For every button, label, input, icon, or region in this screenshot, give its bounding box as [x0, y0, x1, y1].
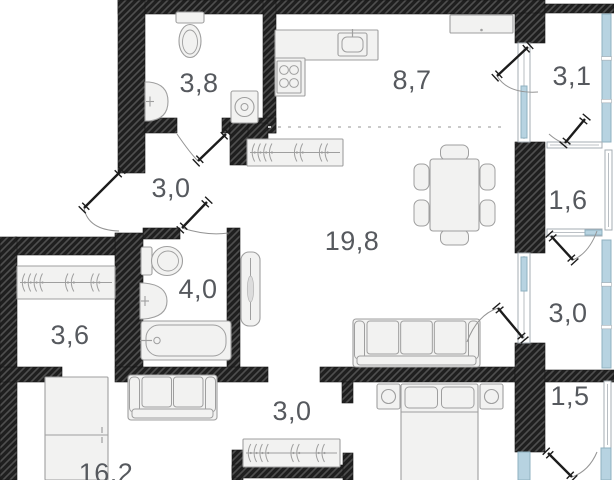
- room-label-loggia-mid: 1,6: [548, 185, 587, 215]
- door-loggia-15: [543, 448, 597, 480]
- wall-closet-top: [15, 237, 115, 255]
- wall-bath38-kitchen: [263, 0, 276, 133]
- furniture-toilet-side: [141, 247, 183, 276]
- wall-hall2-stub-a: [342, 382, 353, 403]
- furniture-sink-bath: [140, 283, 167, 319]
- wall-balc-col-a: [515, 13, 545, 43]
- furniture-loveseat: [128, 375, 217, 420]
- room-label-loggia-lower: 3,0: [548, 298, 587, 328]
- wall-balc-col-b: [515, 142, 545, 253]
- room-label-bathroom-small: 3,8: [179, 68, 218, 98]
- furniture-stove: [277, 61, 301, 93]
- room-label-closet: 3,6: [50, 320, 89, 350]
- door-bath-small: [177, 129, 231, 167]
- furniture-bed: [401, 384, 478, 480]
- furniture-cabinet-top: [450, 15, 513, 33]
- wall-balc-col-c: [515, 343, 545, 452]
- window-sill-31-16: [547, 142, 602, 148]
- wall-bath40-top: [143, 228, 180, 239]
- door-entrance: [79, 167, 126, 231]
- furniture-washing-machine: [231, 91, 258, 123]
- furniture-mirror: [241, 252, 260, 326]
- furniture-bathtub: [140, 321, 231, 360]
- window-frame-15-right: [604, 381, 611, 448]
- wall-left-wall: [0, 237, 17, 480]
- room-label-hall-lower: 3,0: [272, 396, 311, 426]
- room-label-hall-upper: 3,0: [151, 173, 190, 203]
- furniture-wardrobe-hall-low: [243, 439, 340, 467]
- furniture-nightstand-right: [480, 384, 503, 409]
- wall-closet-col: [115, 233, 143, 367]
- furniture-dining-set: [414, 145, 495, 245]
- furniture-sink-top: [145, 82, 168, 121]
- wall-hall2-stub-b: [343, 453, 353, 480]
- room-label-living-room: 19,8: [325, 226, 380, 256]
- room-label-loggia-top: 3,1: [552, 61, 591, 91]
- room-label-bathroom: 4,0: [178, 274, 217, 304]
- wall-living-bottom: [320, 367, 515, 382]
- door-loggia-top: [492, 42, 538, 93]
- wall-hall-living-b: [230, 123, 248, 165]
- furniture-toilet-top: [176, 12, 204, 58]
- room-label-kitchen: 8,7: [392, 65, 431, 95]
- wall-entry-col: [118, 0, 145, 173]
- window-glz-16-30: [585, 230, 602, 235]
- furniture-wardrobe-hall-top: [247, 139, 343, 166]
- window-glz-31-part: [521, 86, 527, 138]
- floor-plan: 3,88,73,13,01,619,84,03,03,61,53,016,2: [0, 0, 614, 480]
- floor-plan-canvas: 3,88,73,13,01,619,84,03,03,61,53,016,2: [0, 0, 614, 480]
- furniture-wardrobe-closet: [17, 266, 115, 299]
- window-frame-16-right: [605, 150, 612, 230]
- wall-top-right: [545, 4, 614, 13]
- furniture-nightstand-left: [377, 384, 400, 409]
- window-glz-30-right: [602, 240, 612, 368]
- window-glz-br: [601, 448, 611, 480]
- room-label-bedroom-16: 16,2: [79, 458, 134, 480]
- window-glz-30-part: [521, 257, 527, 291]
- window-glz-15-part: [518, 452, 530, 480]
- furniture-kitchen-sink: [338, 29, 367, 56]
- furniture-sofa: [353, 319, 480, 367]
- window-glz-31-right: [602, 14, 612, 142]
- room-label-loggia-bottom: 1,5: [550, 381, 589, 411]
